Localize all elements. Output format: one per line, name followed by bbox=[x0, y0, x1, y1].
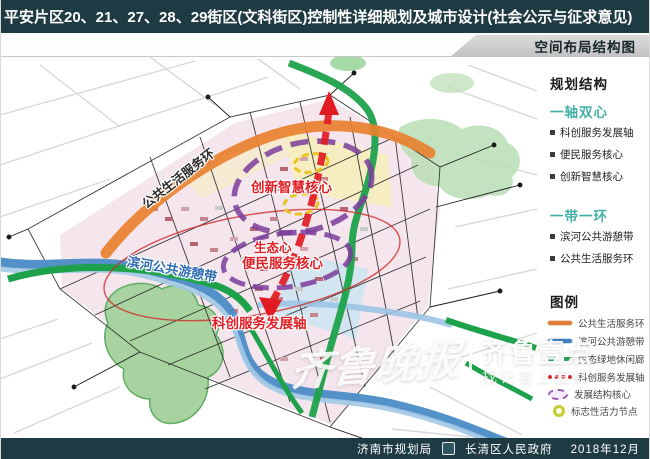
section-axis-cores-heading: 一轴双心 bbox=[550, 101, 608, 121]
blue-line-icon bbox=[548, 339, 572, 343]
red-dashes-icon bbox=[548, 375, 572, 379]
label-service-core: 便民服务核心 bbox=[242, 252, 323, 272]
title-bar: 平安片区20、21、27、28、29街区(文科街区)控制性详细规划及城市设计(社… bbox=[0, 0, 650, 33]
bullet-square-icon bbox=[550, 256, 555, 261]
label-tech-axis: 科创服务发展轴 bbox=[212, 312, 307, 332]
list-item: 创新智慧核心 bbox=[550, 169, 623, 184]
list-item: 公共生活服务环 bbox=[550, 251, 634, 266]
legend-item: 生态绿地休闲廊 bbox=[548, 352, 645, 366]
legend-label: 生态绿地休闲廊 bbox=[578, 352, 645, 366]
bullet-square-icon bbox=[550, 174, 555, 179]
section-belt-ring-heading: 一带一环 bbox=[550, 205, 608, 225]
subtitle-ribbon: 空间布局结构图 bbox=[450, 35, 650, 57]
footer-bar: 济南市规划局 长清区人民政府 2018年12月 bbox=[0, 438, 650, 459]
legend-item: 公共生活服务环 bbox=[548, 316, 645, 330]
list-item: 滨河公共游憩带 bbox=[550, 229, 634, 244]
map-subtitle: 空间布局结构图 bbox=[535, 36, 637, 56]
list-item: 便民服务核心 bbox=[550, 147, 623, 162]
structure-panel: 规划结构 一轴双心 科创服务发展轴 便民服务核心 创新智慧核心 一带一环 滨河公… bbox=[538, 57, 650, 438]
legend-item: 发展结构核心 bbox=[548, 387, 631, 401]
planning-bureau-logo-icon bbox=[442, 442, 455, 455]
legend-item: 滨河公共游憩带 bbox=[548, 334, 645, 348]
bullet-square-icon bbox=[550, 130, 555, 135]
panel-heading: 规划结构 bbox=[550, 73, 608, 93]
item-label: 公共生活服务环 bbox=[560, 251, 634, 266]
bullet-square-icon bbox=[550, 234, 555, 239]
item-label: 科创服务发展轴 bbox=[560, 125, 634, 140]
legend-label: 发展结构核心 bbox=[574, 387, 631, 401]
legend-heading: 图例 bbox=[550, 291, 579, 311]
legend-label: 滨河公共游憩带 bbox=[578, 334, 645, 348]
legend-label: 科创服务发展轴 bbox=[578, 370, 645, 384]
item-label: 创新智慧核心 bbox=[560, 169, 623, 184]
bullet-square-icon bbox=[550, 152, 555, 157]
purple-dashed-ellipse-icon bbox=[548, 389, 568, 400]
list-item: 科创服务发展轴 bbox=[550, 125, 634, 140]
item-label: 滨河公共游憩带 bbox=[560, 229, 634, 244]
label-innovation-core: 创新智慧核心 bbox=[251, 176, 332, 196]
footer-date: 2018年12月 bbox=[571, 441, 640, 457]
item-label: 便民服务核心 bbox=[560, 147, 623, 162]
green-dashes-icon bbox=[548, 357, 572, 361]
legend-item: 标志性活力节点 bbox=[548, 404, 638, 418]
green-patch-top2 bbox=[330, 57, 366, 71]
legend-label: 公共生活服务环 bbox=[578, 316, 645, 330]
page-title: 平安片区20、21、27、28、29街区(文科街区)控制性详细规划及城市设计(社… bbox=[4, 6, 632, 27]
orange-line-icon bbox=[548, 321, 572, 325]
legend-label: 标志性活力节点 bbox=[571, 404, 638, 418]
legend-item: 科创服务发展轴 bbox=[548, 370, 645, 384]
footer-agency1: 济南市规划局 bbox=[357, 441, 432, 457]
green-patch-top bbox=[430, 73, 474, 93]
footer-agency2: 长清区人民政府 bbox=[465, 441, 553, 457]
yellow-circle-icon bbox=[553, 405, 565, 417]
